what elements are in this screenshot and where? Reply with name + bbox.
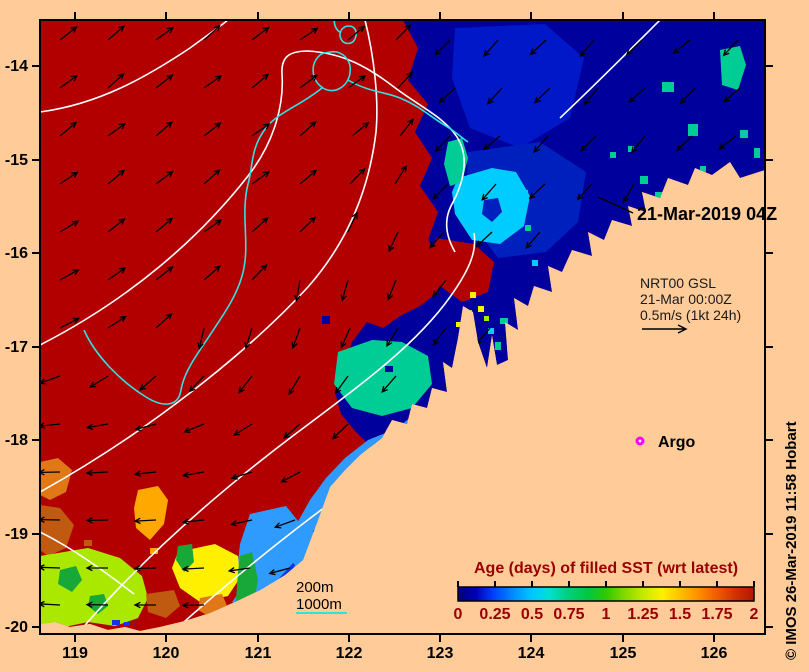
coastal-speckle: [385, 366, 393, 372]
nrt-product-label: NRT00 GSL: [640, 275, 716, 291]
sst-age-map-screenshot: 119120121122123124125126-14-15-16-17-18-…: [0, 0, 809, 672]
coastal-speckle: [688, 124, 698, 136]
analysis-date-label: 21-Mar-2019 04Z: [637, 204, 777, 224]
y-tick-label: -16: [5, 245, 28, 262]
legend-1000m-label: 1000m: [296, 596, 342, 613]
coastal-speckle: [576, 260, 582, 266]
argo-marker-center: [639, 440, 642, 443]
coastal-speckle: [532, 260, 538, 266]
colorbar-title: Age (days) of filled SST (wrt latest): [474, 560, 738, 577]
coastal-speckle: [124, 622, 130, 626]
vector-scale-label: 0.5m/s (1kt 24h): [640, 307, 741, 323]
ocean-data-layer: [40, 20, 765, 631]
x-tick-label: 126: [701, 645, 728, 662]
y-tick-label: -17: [5, 339, 28, 356]
colorbar: Age (days) of filled SST (wrt latest)00.…: [454, 560, 759, 623]
imos-credit: © IMOS 26-Mar-2019 11:58 Hobart: [783, 421, 800, 660]
coastal-speckle: [540, 302, 545, 307]
coastal-speckle: [530, 330, 538, 336]
coastal-speckle: [484, 316, 489, 321]
coastal-speckle: [610, 228, 616, 236]
x-tick-label: 125: [610, 645, 637, 662]
coastal-speckle: [662, 82, 674, 92]
legend-200m-label: 200m: [296, 579, 334, 596]
y-tick-label: -14: [5, 58, 28, 75]
x-tick-label: 121: [245, 645, 272, 662]
coastal-speckle: [596, 244, 604, 250]
colorbar-gradient: [458, 587, 754, 601]
coastal-speckle: [500, 318, 508, 324]
y-tick-label: -18: [5, 432, 28, 449]
x-tick-label: 122: [336, 645, 363, 662]
y-tick-label: -20: [5, 619, 28, 636]
x-tick-label: 124: [518, 645, 545, 662]
colorbar-tick-label: 1.25: [627, 606, 658, 623]
x-tick-label: 123: [427, 645, 454, 662]
vector-scale-arrow: [642, 325, 686, 333]
nrt-time-label: 21-Mar 00:00Z: [640, 291, 732, 307]
coastal-speckle: [518, 308, 524, 314]
coastal-speckle: [466, 310, 472, 316]
colorbar-tick-label: 1.75: [701, 606, 732, 623]
y-tick-label: -19: [5, 526, 28, 543]
colorbar-tick-label: 0.75: [553, 606, 584, 623]
x-tick-label: 119: [62, 645, 88, 662]
coastal-speckle: [544, 296, 550, 302]
coastal-speckle: [495, 342, 501, 350]
colorbar-tick-label: 1: [602, 606, 611, 623]
coastal-speckle: [655, 192, 663, 200]
coastal-speckle: [525, 225, 531, 231]
coastal-speckle: [640, 176, 648, 184]
coastal-speckle: [322, 316, 330, 324]
coastal-speckle: [520, 190, 528, 198]
colorbar-tick-label: 0.25: [479, 606, 510, 623]
colorbar-tick-label: 0.5: [521, 606, 543, 623]
coastal-speckle: [430, 268, 438, 276]
sst-age-patch: [388, 428, 438, 488]
coastal-speckle: [84, 540, 92, 546]
colorbar-tick-label: 2: [750, 606, 759, 623]
coastal-speckle: [470, 292, 476, 298]
coastal-speckle: [370, 330, 380, 338]
coastal-speckle: [462, 316, 468, 322]
coastal-speckle: [700, 166, 706, 172]
coastal-speckle: [456, 322, 461, 327]
map-plot: 119120121122123124125126-14-15-16-17-18-…: [0, 0, 809, 672]
y-tick-label: -15: [5, 152, 28, 169]
colorbar-tick-label: 1.5: [669, 606, 691, 623]
argo-label: Argo: [658, 434, 696, 451]
colorbar-tick-label: 0: [454, 606, 463, 623]
x-tick-label: 120: [153, 645, 180, 662]
coastal-speckle: [112, 620, 120, 625]
coastal-speckle: [478, 306, 484, 312]
coastal-speckle: [544, 318, 550, 324]
coastal-speckle: [754, 148, 760, 158]
coastal-speckle: [740, 130, 748, 138]
coastal-speckle: [558, 276, 566, 282]
coastal-speckle: [610, 152, 616, 158]
